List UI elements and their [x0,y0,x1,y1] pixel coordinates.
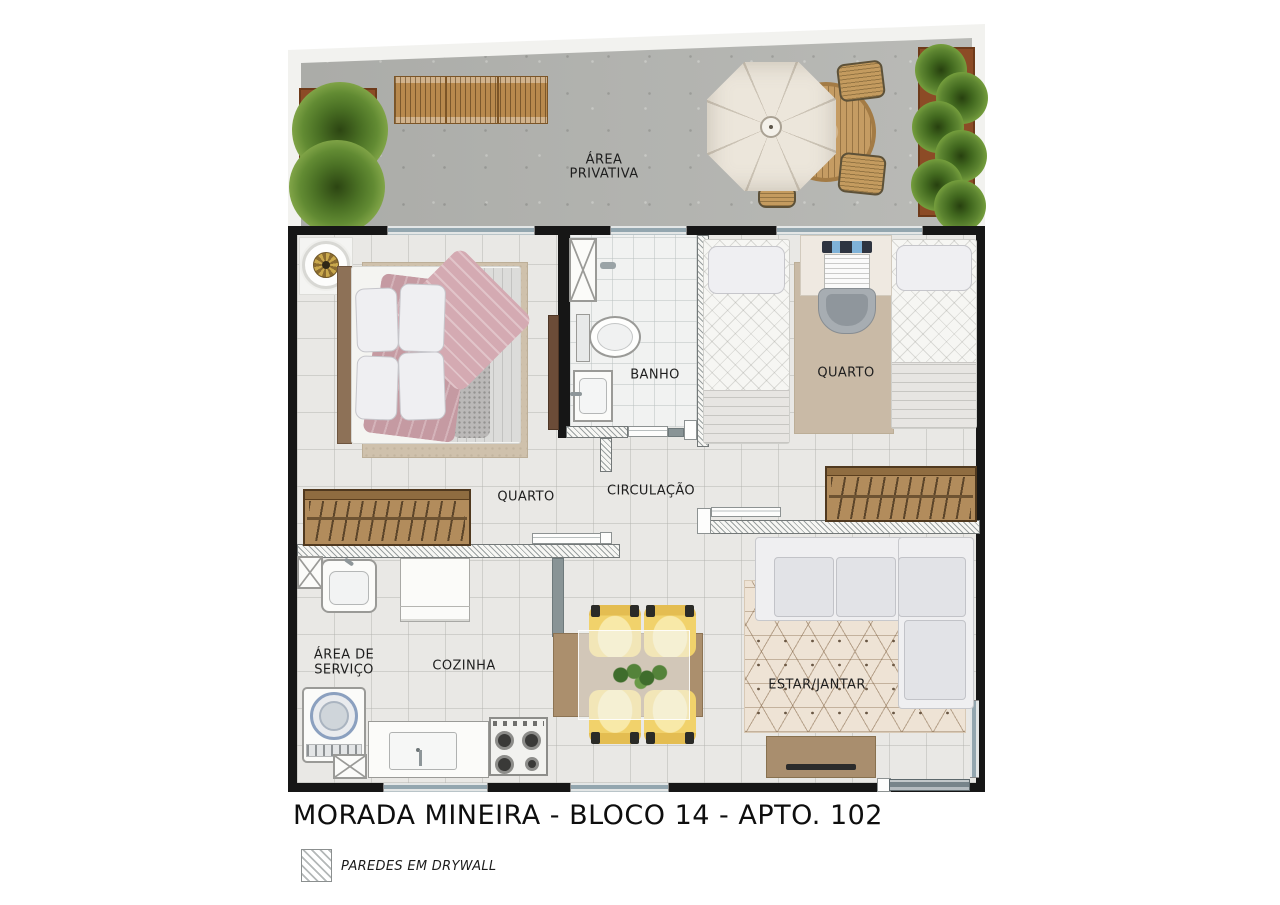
burner-2 [522,731,541,750]
stove-knobs [493,721,544,726]
bathroom-door-threshold [668,428,684,437]
window-living-right [970,700,979,778]
washer-drum-inner [319,701,349,731]
tv-stand [766,736,876,778]
label-quarto1: QUARTO [497,490,554,505]
palm-6 [934,180,986,232]
single-bed-right-pillow [896,245,972,291]
tv [786,764,856,770]
sofa-cushion-4 [904,620,966,700]
kitchen-sink [389,732,457,770]
bath-sink-bowl [579,378,607,414]
single-bed-left-pillow [708,246,785,294]
laptop-keyboard [824,254,870,290]
drywall-legend-label: PAREDES EM DRYWALL [341,859,496,874]
pillow-2 [398,283,446,353]
bathroom-door [628,426,668,437]
wardrobe2-top-rail [827,468,975,476]
sofa-cushion-3 [898,557,966,617]
laptop-screen [822,241,872,253]
plan-title: MORADA MINEIRA - BLOCO 14 - APTO. 102 [293,800,883,831]
wardrobe-bedroom1 [303,489,471,546]
bedroom1-tall-cabinet [548,315,559,430]
window-bathroom [610,226,687,235]
fridge [400,558,470,622]
burner-1 [495,731,514,750]
wardrobe2-hangers [831,477,971,519]
bathroom-door-jamb [684,420,697,440]
shower-valve [600,262,616,269]
label-area-servico-2: SERVIÇO [314,663,374,678]
sofa-cushion-1 [774,557,834,617]
shower-x-mark [571,240,595,300]
sofa-cushion-2 [836,557,896,617]
ceiling-fan-hub [322,261,330,269]
bedroom1-door [532,533,602,544]
drywall-bedroom1-south [297,544,620,558]
sliding-door [889,779,970,791]
bed-headboard [337,266,352,444]
terrace-chair-2 [837,152,887,197]
window-bedroom1 [387,226,535,235]
wardrobe-hangers [309,501,465,541]
pillow-4 [398,351,446,421]
pillow-1 [355,287,399,352]
service-box-top [297,556,323,589]
drywall-stub-circulation [600,438,612,472]
drywall-bedroom2-south [697,520,980,534]
drywall-bathroom-south [566,426,628,438]
label-quarto2: QUARTO [817,366,874,381]
wood-bench [394,76,548,124]
table-centerpiece-plants [612,660,670,690]
label-area-privativa-1: ÁREA [586,153,623,168]
single-bed-left-foot [704,390,789,443]
window-dining [570,783,669,792]
wardrobe-top-rail [305,491,469,500]
bedroom2-door-jamb [697,508,711,534]
burner-3 [495,755,514,774]
window-kitchen [383,783,488,792]
label-circulacao: CIRCULAÇÃO [607,484,695,499]
label-area-servico-1: ÁREA DE [314,648,374,663]
single-bed-right-foot [892,362,976,428]
umbrella-hub [760,116,782,138]
window-bedroom2 [776,226,923,235]
shower-box [569,238,597,302]
bedroom1-door-jamb [600,532,612,544]
service-box-bottom [333,754,367,779]
drywall-legend-swatch [301,849,332,882]
label-banho: BANHO [630,368,680,383]
label-area-privativa-2: PRIVATIVA [570,167,639,182]
label-estar-jantar: ESTAR/JANTAR [768,678,866,693]
toilet-bowl-inner [597,323,633,351]
laundry-tank-bowl [329,571,369,605]
bath-faucet [570,392,582,396]
plant-left-2 [289,140,385,234]
toilet-tank [576,314,590,362]
burner-4 [525,757,539,771]
pillow-3 [355,355,399,420]
label-cozinha: COZINHA [432,659,495,674]
partition-kitchen-dining [552,558,564,637]
bedroom2-door [711,507,781,517]
wardrobe-bedroom2 [825,466,977,522]
wardrobe2-rail [829,495,973,498]
floor-plan: ÁREA PRIVATIVA QUARTO [0,0,1280,905]
kitchen-faucet [419,750,422,766]
terrace-chair-1 [836,59,886,102]
wardrobe-rail [307,517,467,520]
fridge-divider [400,606,470,607]
